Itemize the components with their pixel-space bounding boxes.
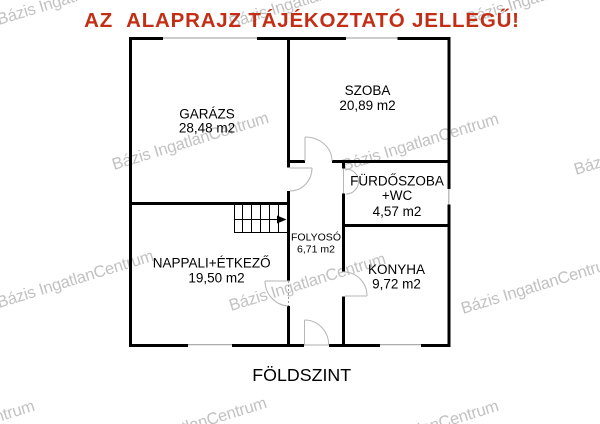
svg-text:9,72 m2: 9,72 m2: [372, 277, 421, 292]
svg-text:19,50 m2: 19,50 m2: [188, 270, 244, 285]
svg-text:GARÁZS: GARÁZS: [179, 106, 235, 121]
svg-text:28,48 m2: 28,48 m2: [179, 121, 235, 136]
svg-text:FÖLDSZINT: FÖLDSZINT: [252, 365, 351, 385]
svg-text:+WC: +WC: [382, 188, 413, 203]
svg-text:20,89 m2: 20,89 m2: [339, 98, 395, 113]
svg-text:AZ ALAPRAJZ TÁJÉKOZTATÓ JELLE: AZ ALAPRAJZ TÁJÉKOZTATÓ JELLEGŰ!: [84, 8, 520, 32]
svg-text:FOLYOSÓ: FOLYOSÓ: [291, 231, 341, 244]
svg-text:6,71 m2: 6,71 m2: [297, 243, 335, 255]
svg-text:NAPPALI+ÉTKEZŐ: NAPPALI+ÉTKEZŐ: [153, 256, 271, 271]
svg-text:KONYHA: KONYHA: [368, 262, 425, 277]
svg-text:4,57 m2: 4,57 m2: [373, 204, 422, 219]
svg-text:SZOBA: SZOBA: [345, 83, 391, 98]
svg-text:FÜRDŐSZOBA: FÜRDŐSZOBA: [350, 173, 444, 188]
